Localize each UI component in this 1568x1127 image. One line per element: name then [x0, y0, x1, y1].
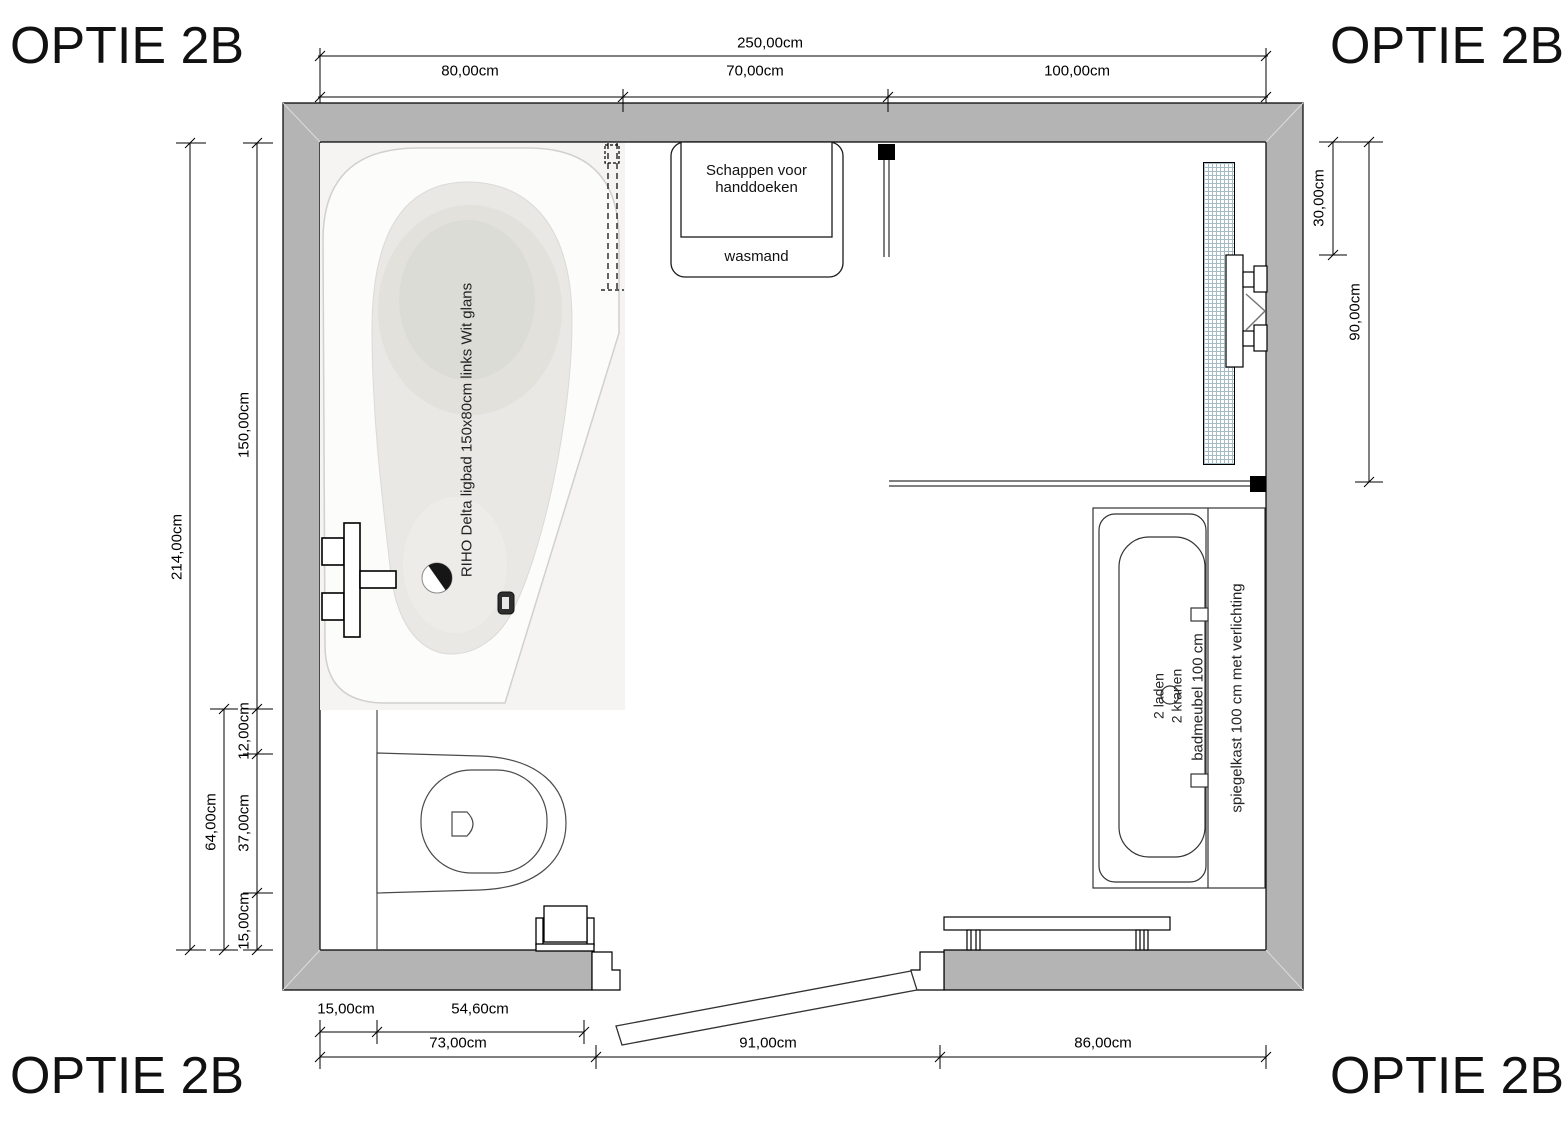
- vanity-label: badmeubel 100 cm: [1190, 633, 1207, 761]
- dim-bottom-door: 91,00cm: [739, 1035, 797, 1052]
- bench: [944, 917, 1170, 950]
- toilet: [377, 710, 566, 950]
- dim-left-gap: 12,00cm: [236, 702, 253, 760]
- dim-left-bottom-gap: 15,00cm: [236, 892, 253, 950]
- mirror-cabinet-label: spiegelkast 100 cm met verlichting: [1229, 583, 1246, 812]
- title-top-left: OPTIE 2B: [10, 16, 244, 76]
- title-bottom-left: OPTIE 2B: [10, 1046, 244, 1106]
- floorplan-canvas: OPTIE 2B OPTIE 2B OPTIE 2B OPTIE 2B 250,…: [0, 0, 1568, 1127]
- title-bottom-right: OPTIE 2B: [1330, 1046, 1564, 1106]
- dim-total-width: 250,00cm: [737, 35, 803, 52]
- shower-glass-return: [878, 144, 895, 257]
- dim-top-right-width: 100,00cm: [1044, 63, 1110, 80]
- title-top-right: OPTIE 2B: [1330, 16, 1564, 76]
- radiator-mount: [1226, 255, 1267, 367]
- vanity-taps-label: 2 kranen: [1168, 669, 1186, 723]
- dim-left-toilet: 37,00cm: [236, 794, 253, 852]
- dim-bottom-inset: 15,00cm: [317, 1001, 375, 1018]
- shower-glass-panel: [889, 476, 1266, 492]
- dim-left-total: 214,00cm: [169, 514, 186, 580]
- vanity-drawers-label: 2 laden: [1151, 669, 1169, 723]
- laundry-basket-label: wasmand: [681, 248, 832, 265]
- dim-bottom-left-wall: 73,00cm: [429, 1035, 487, 1052]
- vanity-sub-label: 2 laden 2 kranen: [1151, 669, 1186, 723]
- dim-left-bath: 150,00cm: [236, 392, 253, 458]
- dim-bottom-right-wall: 86,00cm: [1074, 1035, 1132, 1052]
- dim-right-glass-return: 30,00cm: [1311, 169, 1328, 227]
- dim-top-mid-width: 70,00cm: [726, 63, 784, 80]
- bathtub-label: RIHO Delta ligbad 150x80cm links Wit gla…: [459, 283, 476, 577]
- shelves-label: Schappen voor handdoeken: [681, 162, 832, 196]
- dim-top-bath-width: 80,00cm: [441, 63, 499, 80]
- dim-right-shower-depth: 90,00cm: [1347, 283, 1364, 341]
- dim-bottom-niche: 54,60cm: [451, 1001, 509, 1018]
- dim-left-lower-total: 64,00cm: [203, 793, 220, 851]
- toilet-roll-holder: [536, 906, 594, 951]
